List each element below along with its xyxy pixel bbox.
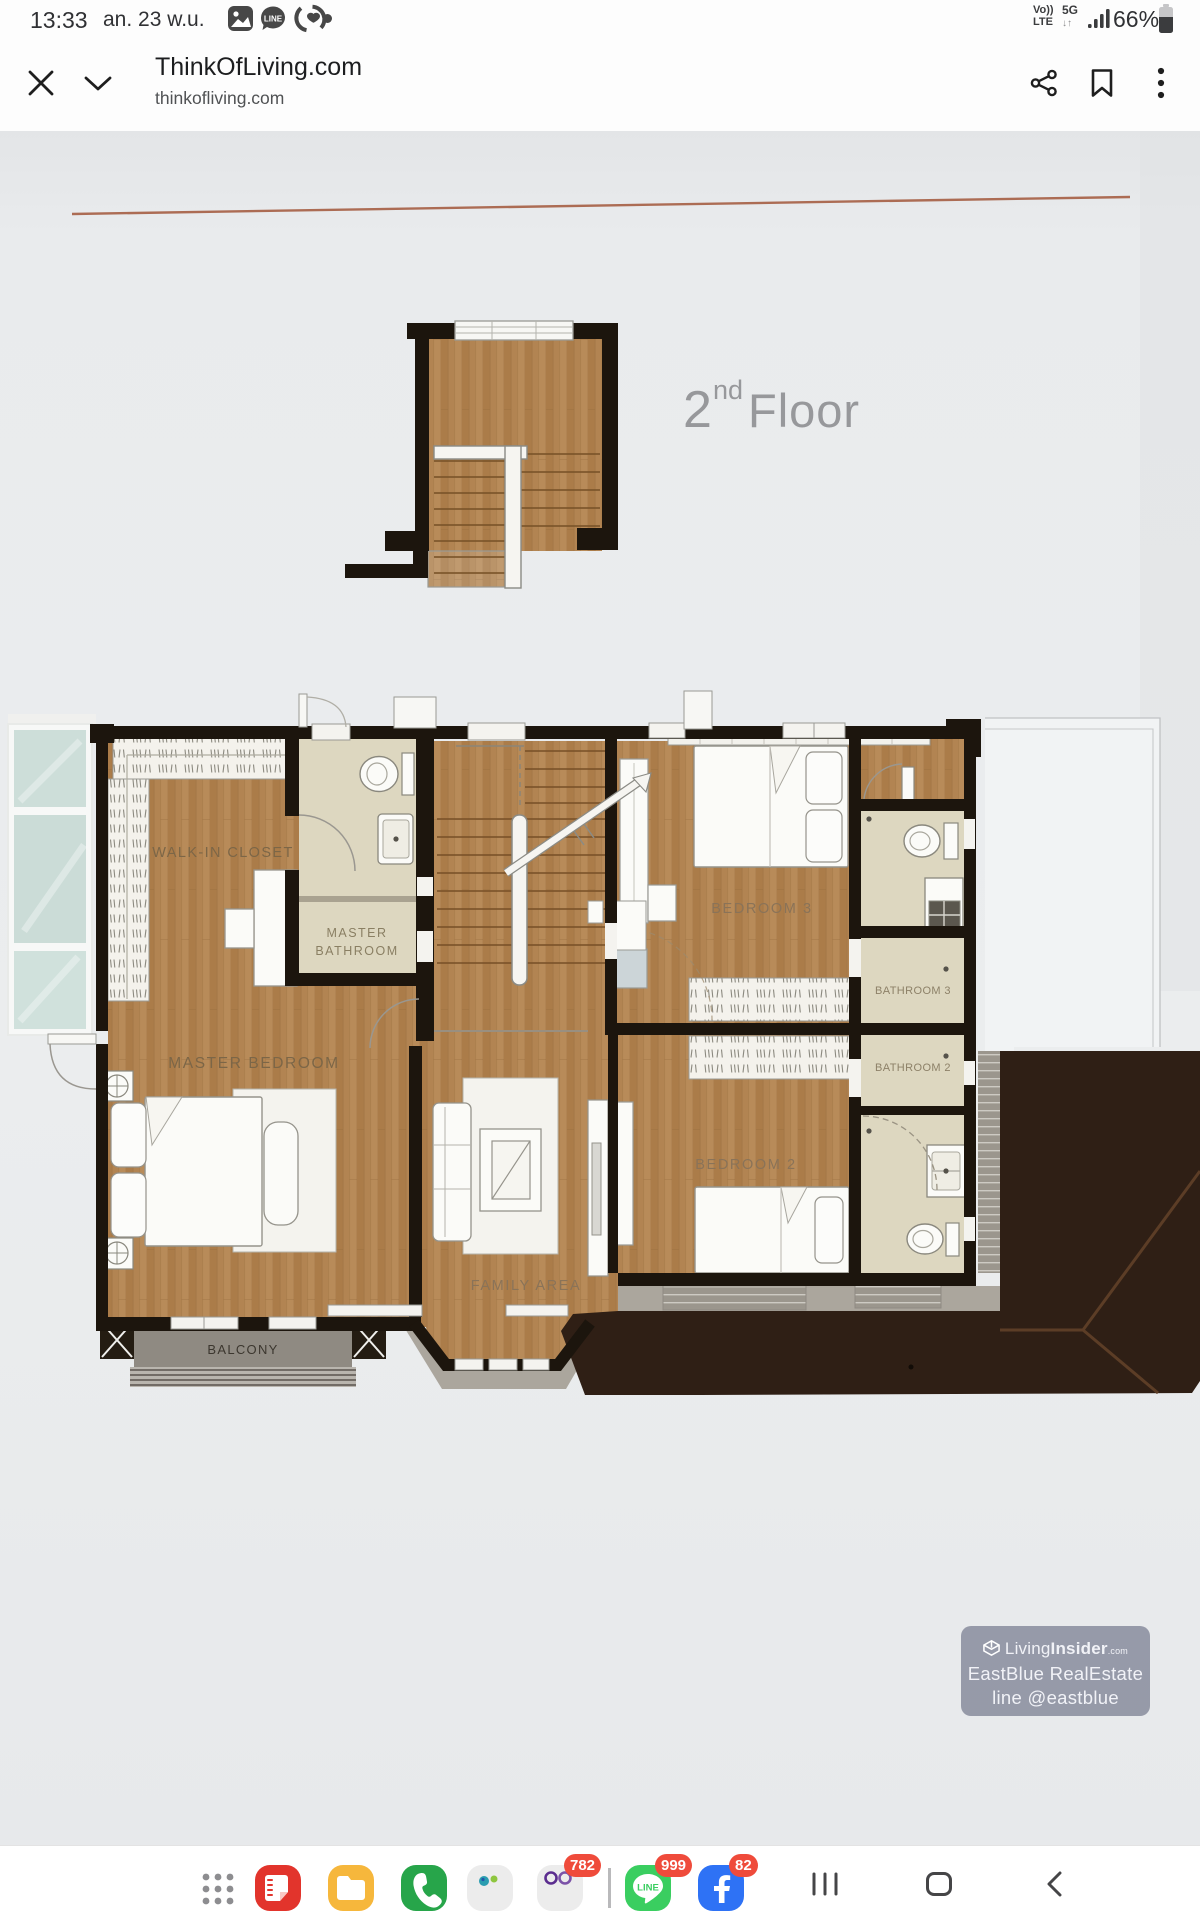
svg-text:nd: nd: [713, 375, 743, 405]
svg-text:BEDROOM 2: BEDROOM 2: [695, 1157, 796, 1173]
svg-text:BEDROOM 3: BEDROOM 3: [711, 901, 812, 917]
svg-text:Floor: Floor: [748, 384, 860, 437]
svg-text:BATHROOM 2: BATHROOM 2: [875, 1062, 951, 1074]
svg-text:BATHROOM: BATHROOM: [315, 944, 398, 958]
svg-text:BATHROOM 3: BATHROOM 3: [875, 985, 951, 997]
svg-text:MASTER BEDROOM: MASTER BEDROOM: [168, 1055, 339, 1072]
svg-text:BALCONY: BALCONY: [207, 1342, 278, 1357]
svg-text:WALK-IN CLOSET: WALK-IN CLOSET: [152, 845, 294, 861]
svg-text:MASTER: MASTER: [326, 926, 387, 940]
svg-text:LINE: LINE: [264, 15, 283, 24]
svg-text:LINE: LINE: [637, 1883, 659, 1894]
svg-text:FAMILY AREA: FAMILY AREA: [471, 1278, 582, 1294]
svg-text:2: 2: [683, 381, 712, 439]
